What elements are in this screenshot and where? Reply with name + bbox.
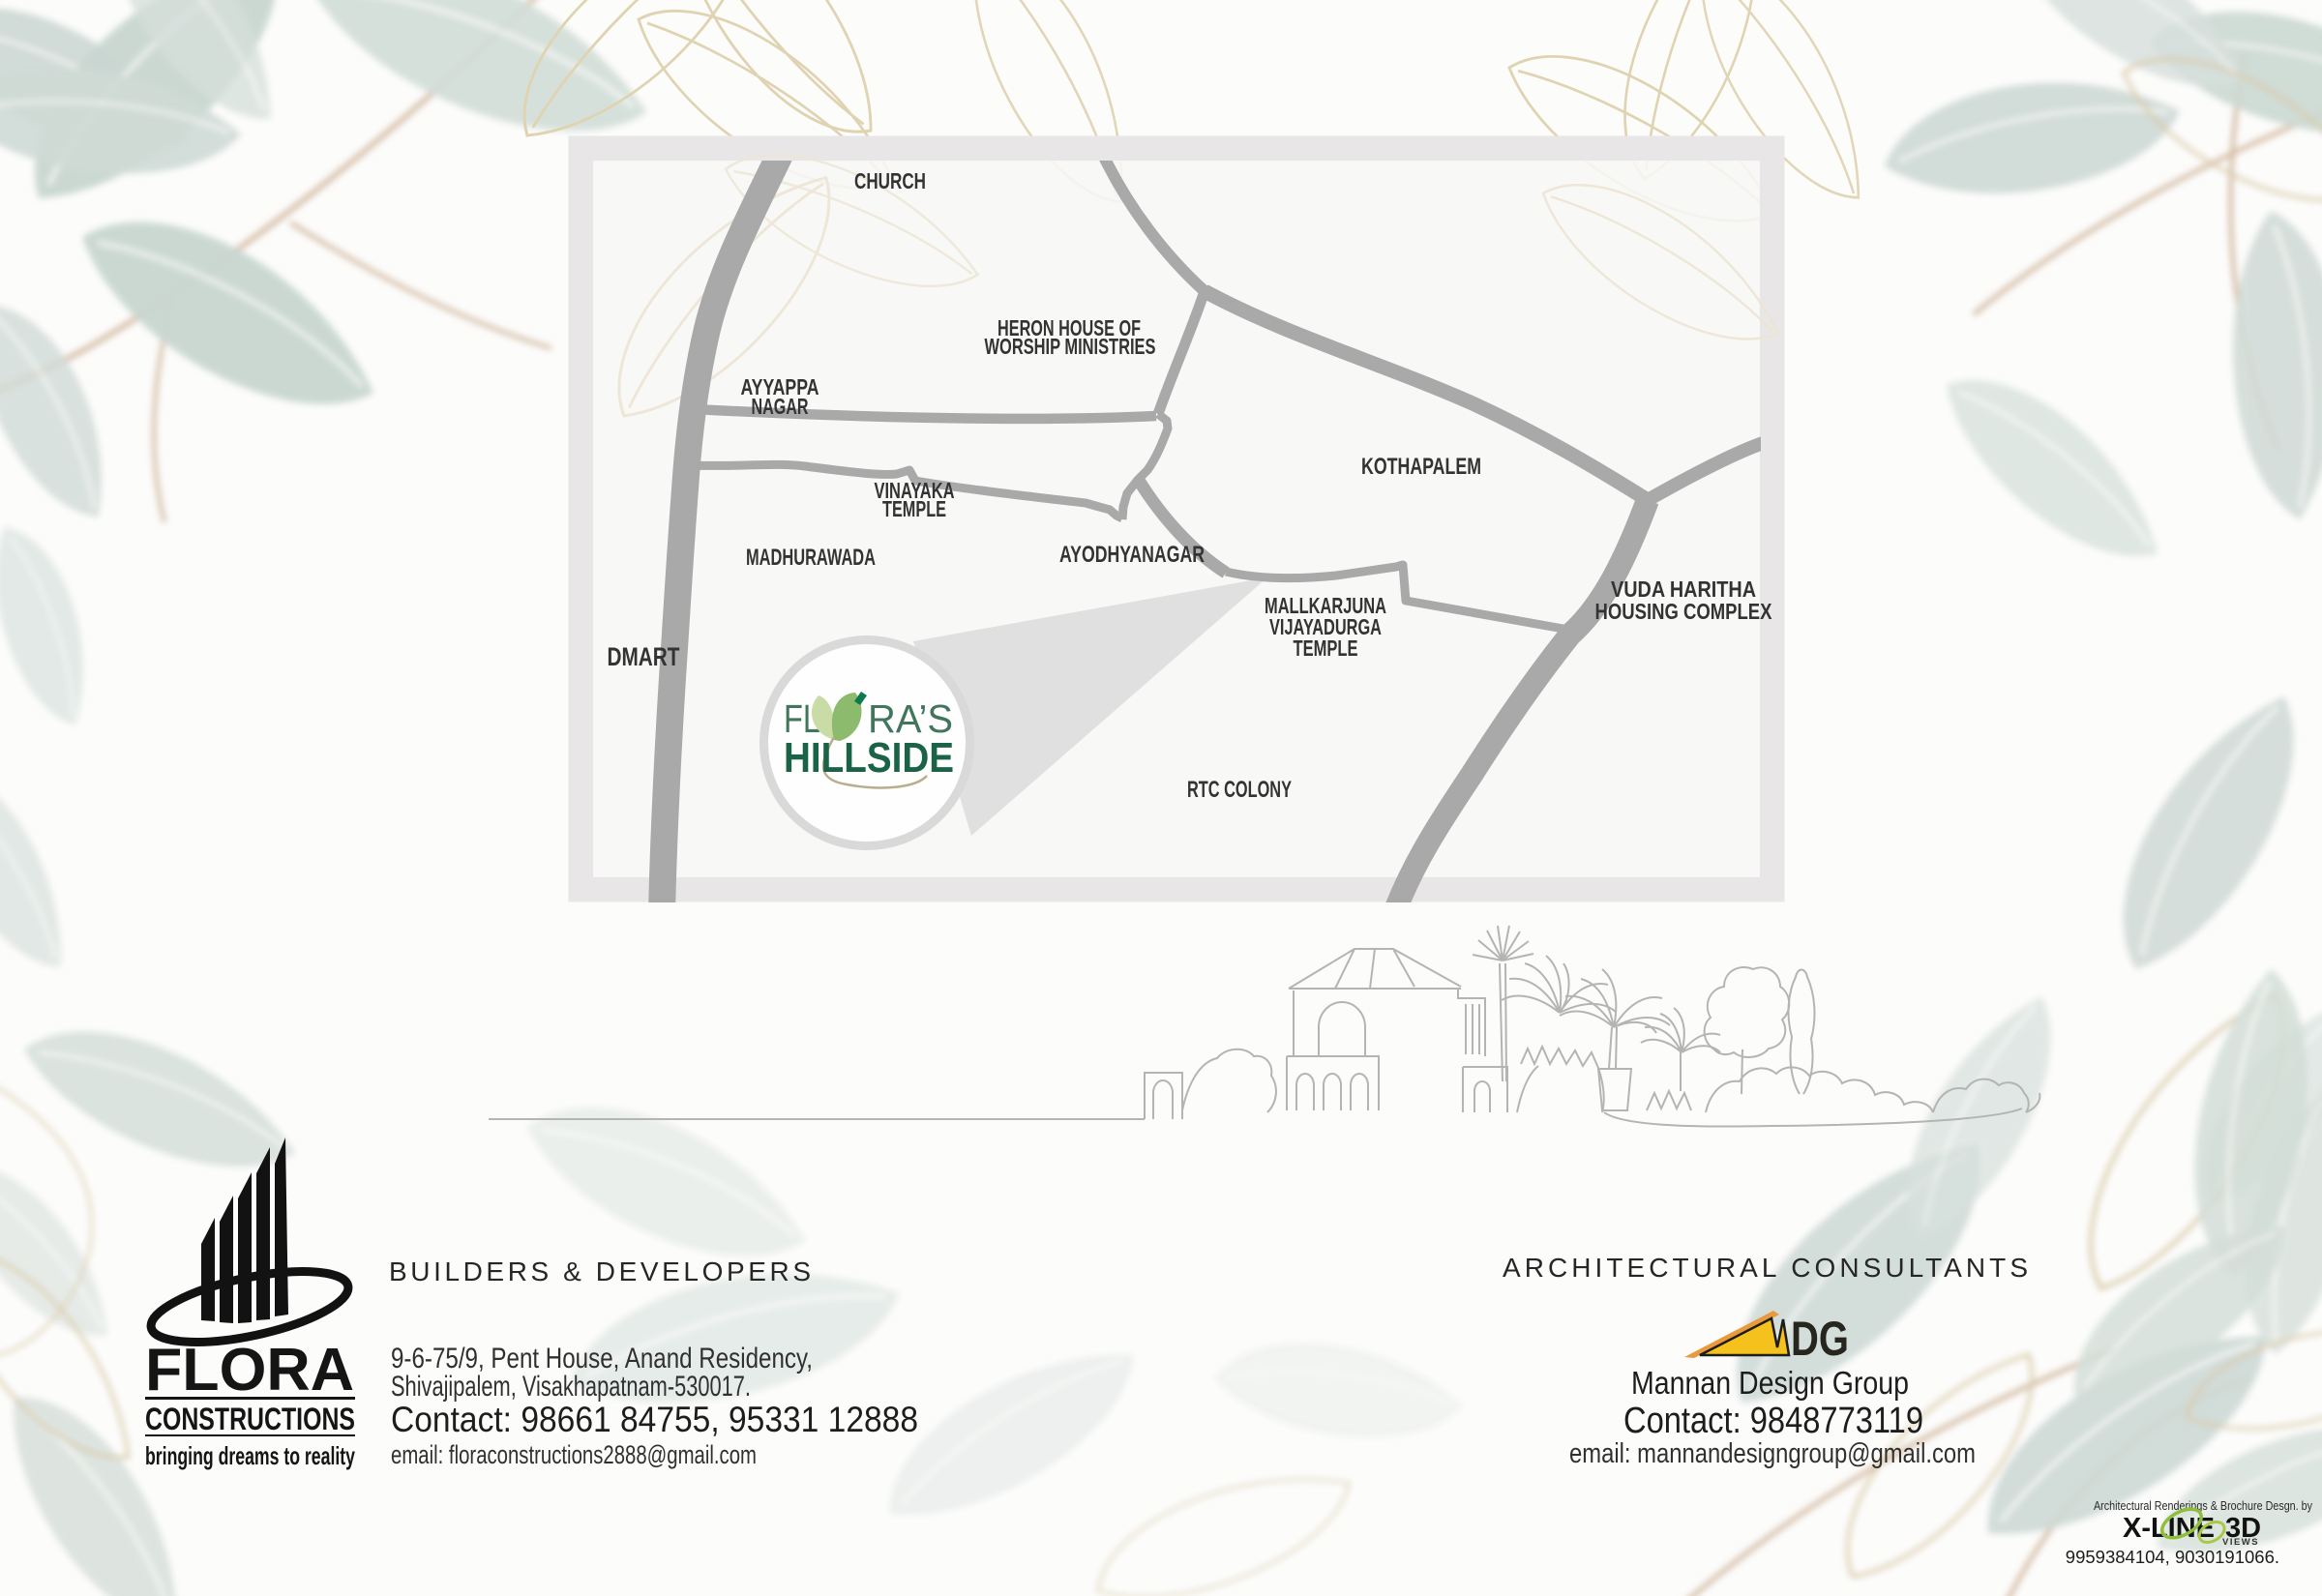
svg-text:DMART: DMART (608, 642, 680, 671)
svg-text:MADHURAWADA: MADHURAWADA (746, 545, 876, 571)
svg-text:email: mannandesigngroup@gmail: email: mannandesigngroup@gmail.com (1569, 1438, 1976, 1469)
svg-text:AYYAPPANAGAR: AYYAPPANAGAR (741, 374, 819, 419)
svg-text:CONSTRUCTIONS: CONSTRUCTIONS (145, 1402, 355, 1436)
svg-text:bringing dreams to reality: bringing dreams to reality (145, 1441, 355, 1470)
svg-text:RTC COLONY: RTC COLONY (1187, 777, 1292, 803)
svg-text:HILLSIDE: HILLSIDE (784, 734, 954, 782)
svg-text:9959384104, 9030191066.: 9959384104, 9030191066. (2066, 1547, 2279, 1567)
svg-text:HERON HOUSE OFWORSHIP MINISTRI: HERON HOUSE OFWORSHIP MINISTRIES (985, 315, 1156, 359)
svg-text:AYODHYANAGAR: AYODHYANAGAR (1059, 542, 1205, 568)
svg-text:KOTHAPALEM: KOTHAPALEM (1361, 454, 1481, 480)
svg-text:Mannan Design Group: Mannan Design Group (1631, 1365, 1909, 1401)
svg-text:Architectural Renderings & Bro: Architectural Renderings & Brochure Desg… (2094, 1498, 2312, 1513)
svg-text:BUILDERS & DEVELOPERS: BUILDERS & DEVELOPERS (389, 1256, 811, 1286)
svg-text:VINAYAKATEMPLE: VINAYAKATEMPLE (875, 478, 955, 521)
svg-text:Shivajipalem, Visakhapatnam-53: Shivajipalem, Visakhapatnam-530017. (391, 1371, 751, 1403)
svg-text:Contact: 98661 84755, 95331 12: Contact: 98661 84755, 95331 12888 (391, 1400, 918, 1439)
svg-text:FLORA: FLORA (145, 1337, 354, 1404)
svg-text:ARCHITECTURAL CONSULTANTS: ARCHITECTURAL CONSULTANTS (1503, 1253, 2028, 1283)
svg-text:email: floraconstructions2888@: email: floraconstructions2888@gmail.com (391, 1440, 757, 1469)
svg-text:CHURCH: CHURCH (854, 168, 926, 193)
svg-text:DG: DG (1791, 1312, 1849, 1366)
svg-text:Contact: 9848773119: Contact: 9848773119 (1623, 1401, 1923, 1441)
svg-text:VUDA HARITHAHOUSING COMPLEX: VUDA HARITHAHOUSING COMPLEX (1595, 576, 1773, 624)
